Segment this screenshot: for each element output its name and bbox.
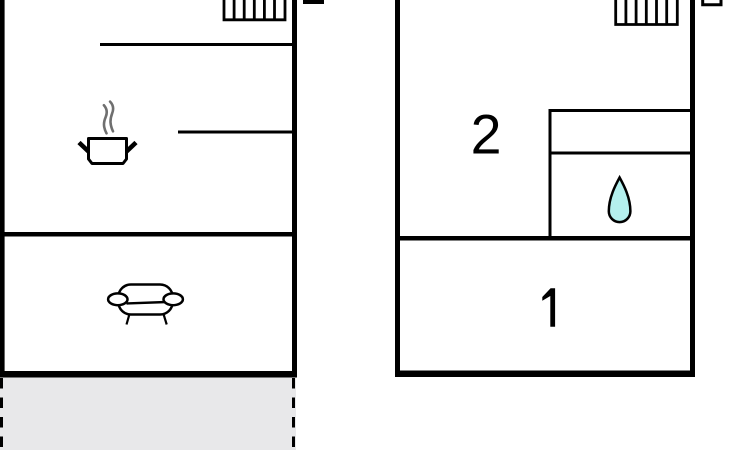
svg-text:2: 2 [471,103,502,165]
